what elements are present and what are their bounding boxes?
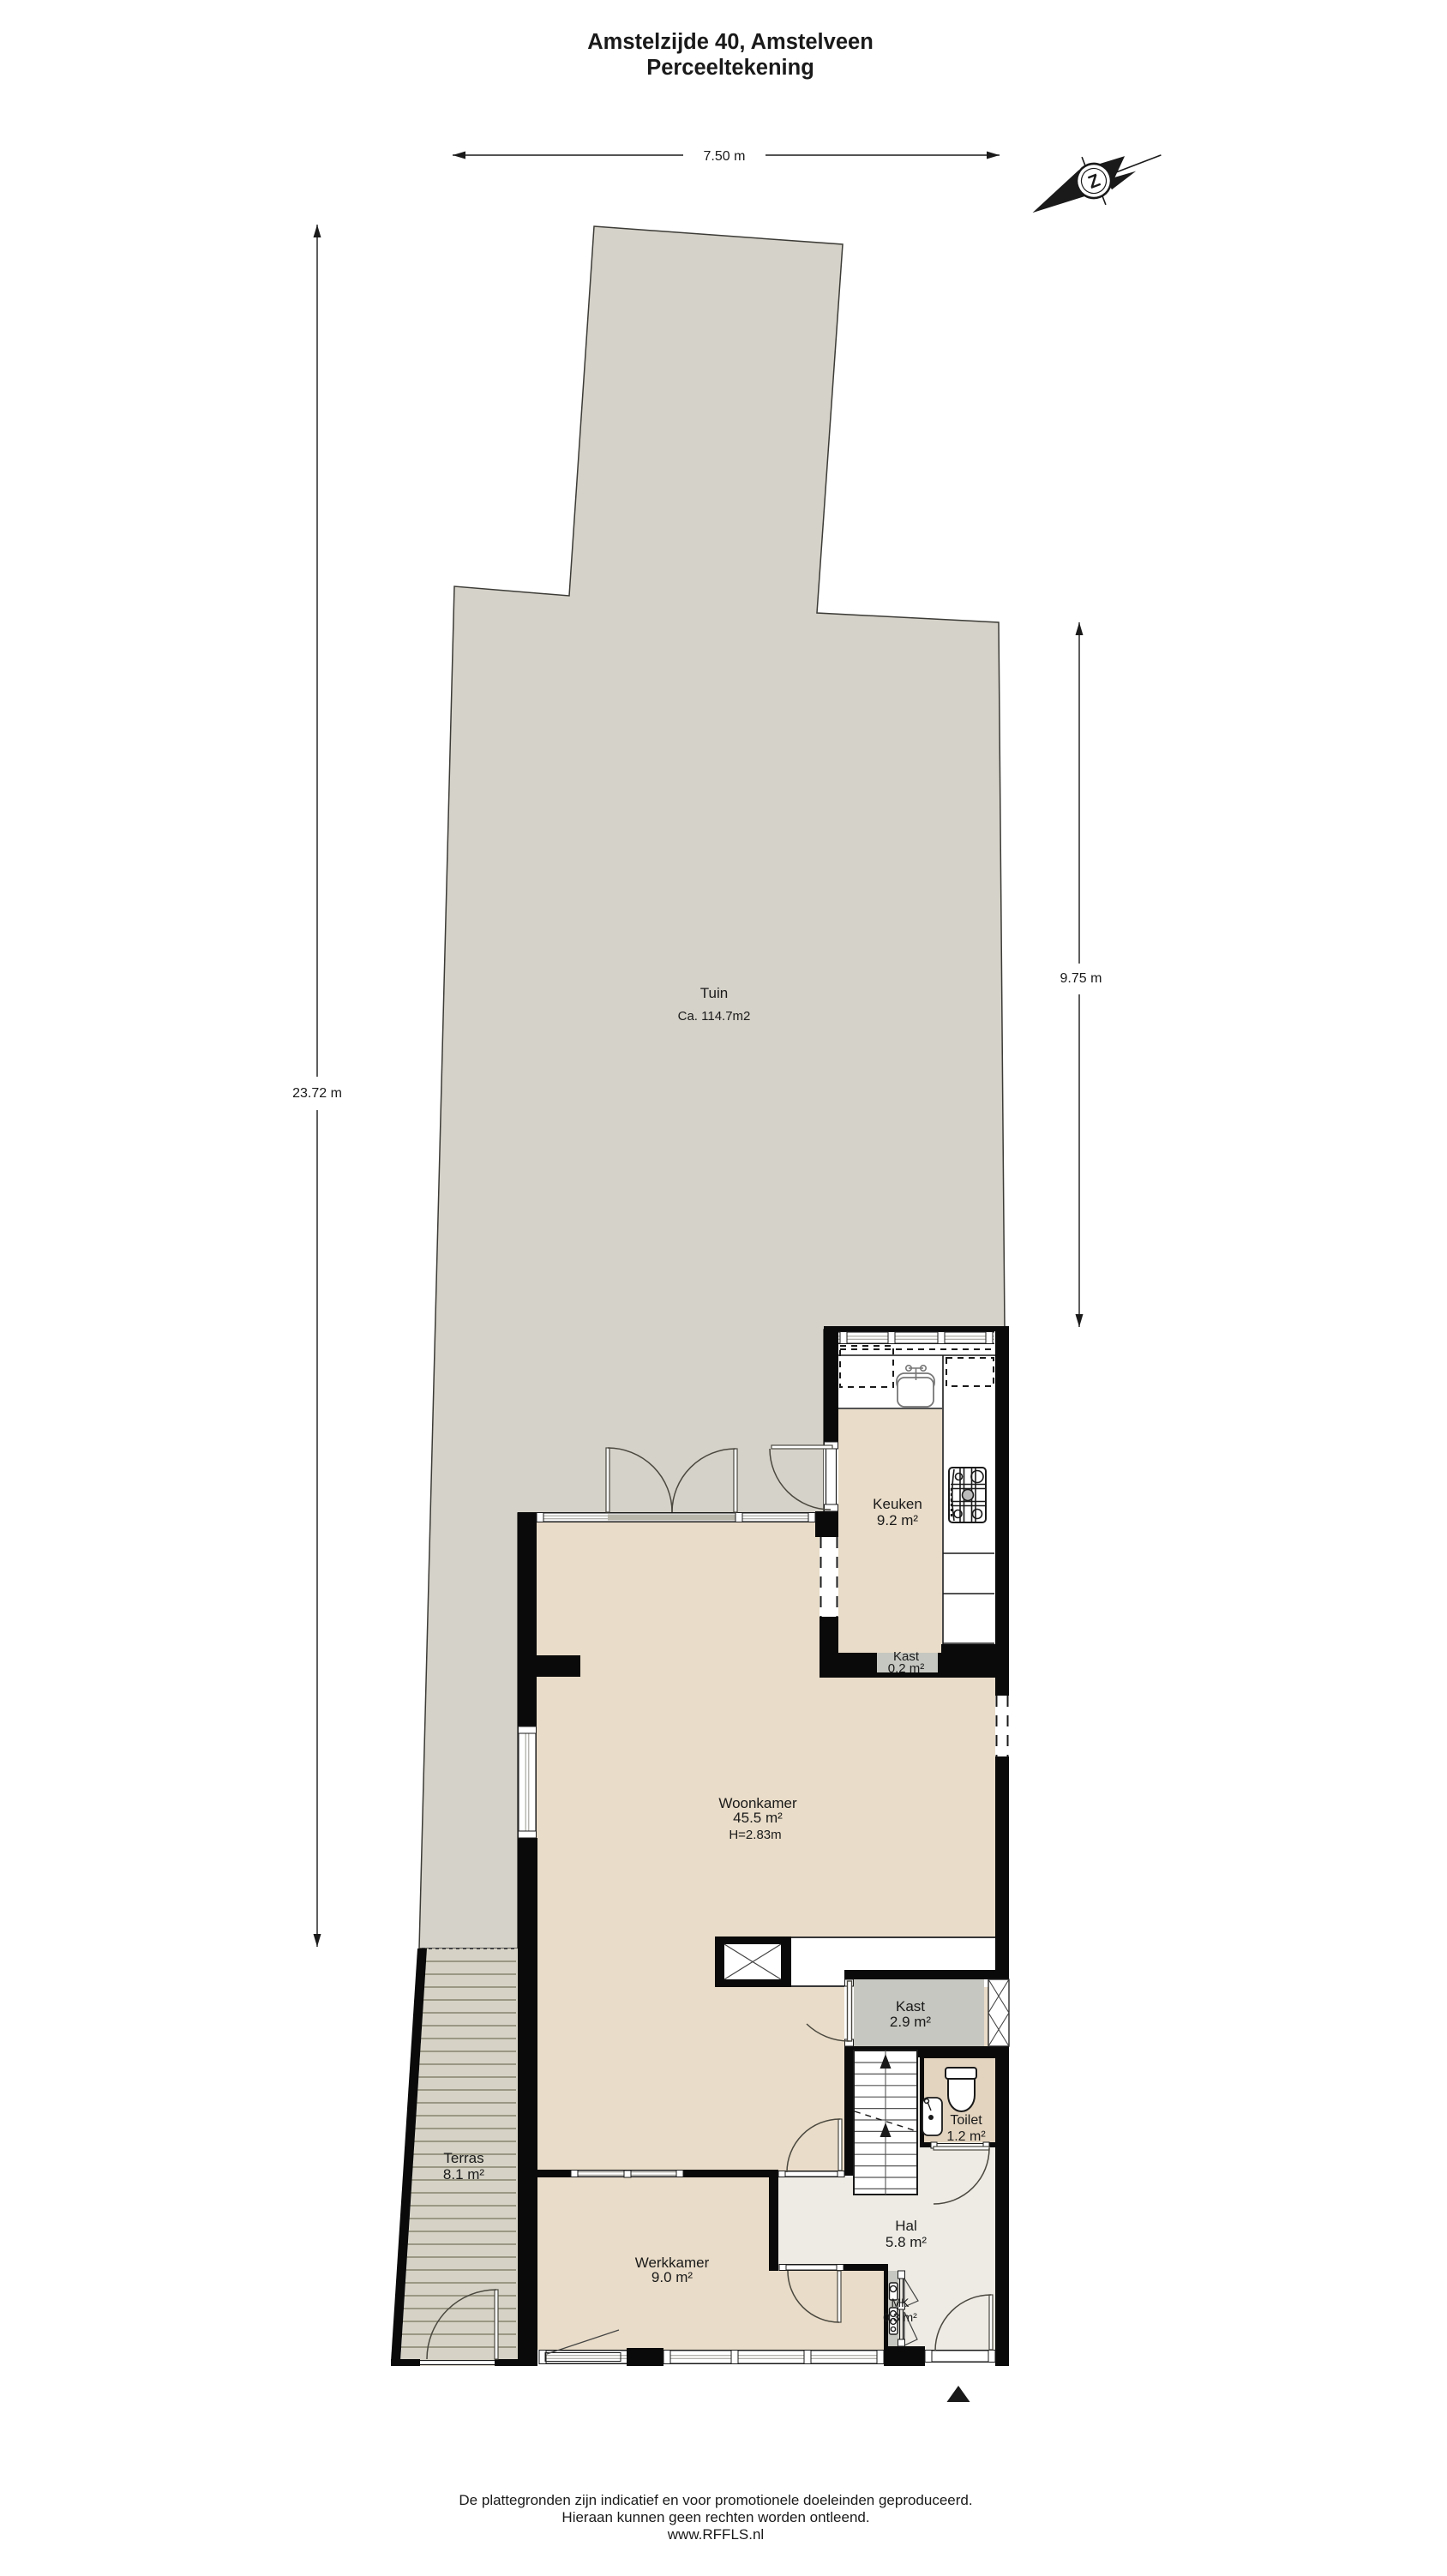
svg-text:Terras: Terras — [443, 2150, 483, 2166]
svg-text:Toilet: Toilet — [950, 2113, 982, 2128]
svg-text:Hieraan kunnen geen rechten wo: Hieraan kunnen geen rechten worden ontle… — [561, 2509, 869, 2525]
svg-text:45.5 m²: 45.5 m² — [733, 1810, 783, 1826]
svg-text:Kast: Kast — [896, 1998, 925, 2015]
svg-text:8.1 m²: 8.1 m² — [443, 2166, 485, 2183]
svg-text:9.75 m: 9.75 m — [1060, 971, 1102, 986]
svg-text:MK: MK — [892, 2296, 910, 2309]
svg-text:9.2 m²: 9.2 m² — [877, 1512, 919, 1528]
svg-text:Hal: Hal — [895, 2218, 917, 2234]
svg-text:0.2 m²: 0.2 m² — [888, 1661, 925, 1676]
svg-text:De plattegronden zijn indicati: De plattegronden zijn indicatief en voor… — [459, 2492, 972, 2508]
svg-text:23.72 m: 23.72 m — [292, 1086, 342, 1101]
svg-text:Perceeltekening: Perceeltekening — [646, 56, 814, 80]
svg-text:Ca. 114.7m2: Ca. 114.7m2 — [678, 1009, 751, 1024]
svg-text:7.50 m: 7.50 m — [704, 149, 746, 164]
svg-text:Tuin: Tuin — [700, 985, 728, 1001]
svg-text:H=2.83m: H=2.83m — [729, 1828, 781, 1842]
svg-text:Amstelzijde 40, Amstelveen: Amstelzijde 40, Amstelveen — [587, 30, 874, 54]
svg-text:5.8 m²: 5.8 m² — [886, 2234, 928, 2250]
svg-text:1.2 m²: 1.2 m² — [946, 2129, 986, 2144]
svg-text:2.9 m²: 2.9 m² — [890, 2014, 932, 2030]
svg-text:0.3 m²: 0.3 m² — [883, 2310, 917, 2324]
svg-text:Keuken: Keuken — [873, 1496, 922, 1512]
svg-text:9.0 m²: 9.0 m² — [651, 2269, 693, 2285]
svg-text:www.RFFLS.nl: www.RFFLS.nl — [667, 2526, 764, 2543]
